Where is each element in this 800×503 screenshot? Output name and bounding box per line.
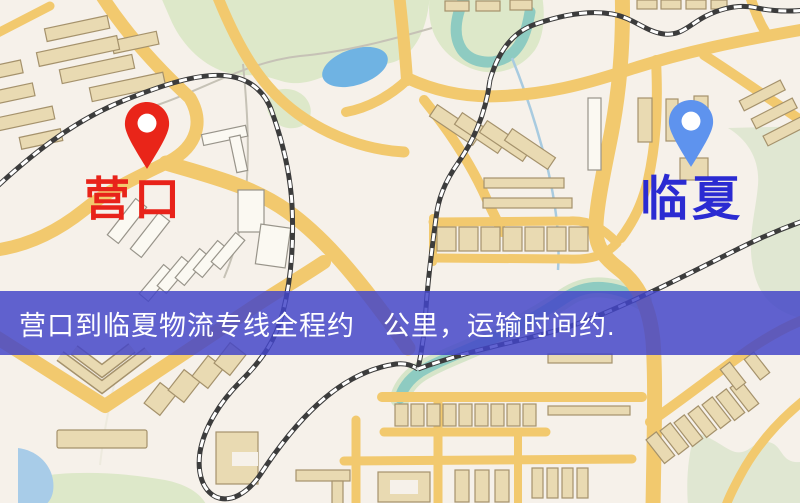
map-pin-icon xyxy=(666,98,716,170)
origin-pin-shape xyxy=(125,102,169,169)
destination-city-label: 临夏 xyxy=(640,176,744,224)
map-background xyxy=(0,0,800,503)
origin-city-label: 营口 xyxy=(84,176,184,222)
destination-pin-shape xyxy=(669,100,713,167)
origin-pin xyxy=(122,100,172,172)
map-pin-icon xyxy=(122,100,172,172)
route-info-banner: 营口到临夏物流专线全程约 公里，运输时间约. xyxy=(0,291,800,355)
route-info-text: 营口到临夏物流专线全程约 公里，运输时间约. xyxy=(0,304,616,343)
destination-pin xyxy=(666,98,716,170)
logistics-route-map: 营口 临夏 营口到临夏物流专线全程约 公里，运输时间约. xyxy=(0,0,800,503)
